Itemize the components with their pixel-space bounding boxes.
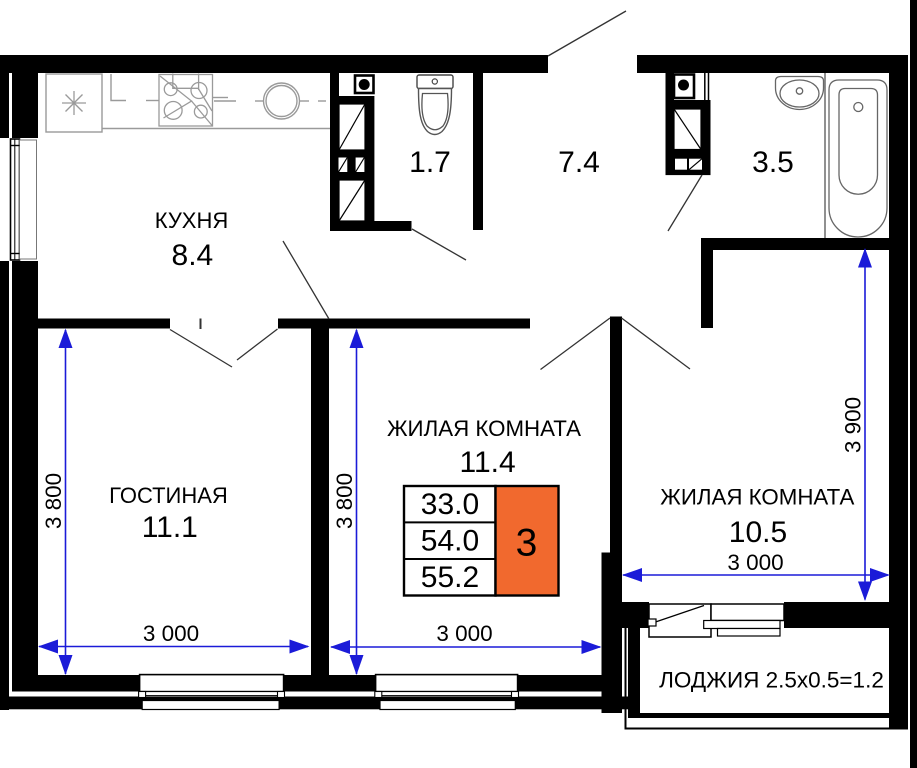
svg-text:10.5: 10.5 [729,516,787,549]
svg-text:11.4: 11.4 [460,446,516,479]
svg-text:3 000: 3 000 [436,621,492,646]
svg-text:11.1: 11.1 [142,511,198,544]
svg-text:1.7: 1.7 [409,146,451,179]
svg-text:3: 3 [516,522,538,565]
svg-text:54.0: 54.0 [421,525,479,558]
svg-text:3 800: 3 800 [332,473,357,529]
svg-text:7.4: 7.4 [558,146,600,179]
svg-text:КУХНЯ: КУХНЯ [155,208,229,233]
svg-text:3 000: 3 000 [727,550,783,575]
svg-text:ЖИЛАЯ КОМНАТА: ЖИЛАЯ КОМНАТА [387,416,581,441]
svg-text:3.5: 3.5 [752,146,794,179]
svg-text:3 000: 3 000 [143,621,199,646]
svg-text:8.4: 8.4 [172,239,214,272]
svg-text:3 800: 3 800 [41,473,66,529]
svg-text:ГОСТИНАЯ: ГОСТИНАЯ [109,483,228,508]
svg-text:ЖИЛАЯ КОМНАТА: ЖИЛАЯ КОМНАТА [660,485,854,510]
svg-text:33.0: 33.0 [421,488,479,521]
svg-text:3 900: 3 900 [841,397,866,453]
svg-text:55.2: 55.2 [421,561,479,594]
svg-text:ЛОДЖИЯ 2.5x0.5=1.2: ЛОДЖИЯ 2.5x0.5=1.2 [659,668,884,693]
